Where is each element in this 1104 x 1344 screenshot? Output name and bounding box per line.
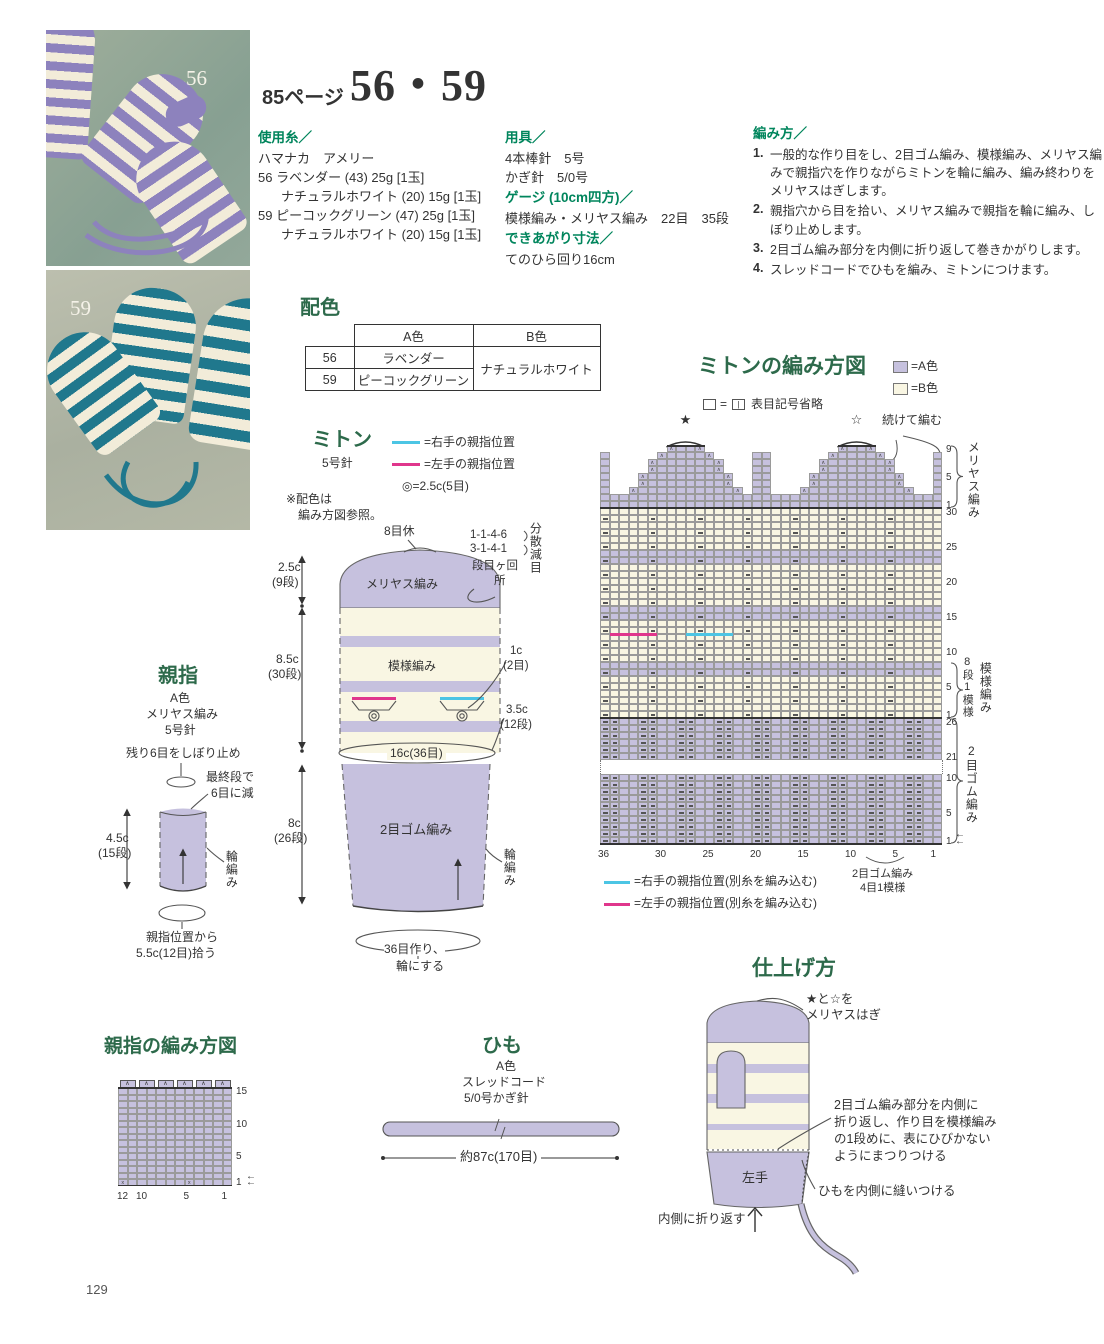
grid-cell [223, 1166, 233, 1173]
grid-cell [876, 634, 886, 641]
grid-cell [695, 753, 705, 760]
grid-cell [914, 809, 924, 816]
grid-cell [705, 732, 715, 739]
grid-cell [695, 536, 705, 543]
grid-cell [819, 522, 829, 529]
grid-cell [762, 613, 772, 620]
grid-cell [194, 1147, 204, 1154]
grid-cell [223, 1134, 233, 1141]
grid-cell [705, 725, 715, 732]
sew-note: の1段めに、表にひびかない [834, 1132, 991, 1147]
mitten-chart-title: ミトンの編み方図 [698, 354, 866, 379]
grid-cell [676, 809, 686, 816]
grid-cell [771, 725, 781, 732]
grid-cell [648, 662, 658, 669]
grid-cell [705, 613, 715, 620]
grid-cell [771, 830, 781, 837]
grid-cell [800, 627, 810, 634]
grid-cell [705, 669, 715, 676]
grid-cell [695, 690, 705, 697]
grid-cell [876, 795, 886, 802]
grid-cell [733, 802, 743, 809]
grid-cell [838, 536, 848, 543]
grid-cell [667, 529, 677, 536]
grid-cell [667, 494, 677, 501]
grid-cell [213, 1101, 223, 1108]
grid-cell [904, 557, 914, 564]
page-title: 56・59 [350, 60, 487, 113]
grid-cell [904, 648, 914, 655]
grid-cell [600, 774, 610, 781]
grid-cell [781, 704, 791, 711]
grid-cell [800, 599, 810, 606]
grid-cell [743, 634, 753, 641]
dim-mid: 8.5c [276, 652, 299, 666]
grid-cell [213, 1140, 223, 1147]
grid-cell [857, 487, 867, 494]
grid-cell [866, 732, 876, 739]
grid-cell [809, 830, 819, 837]
grid-cell [714, 571, 724, 578]
grid-cell [933, 459, 943, 466]
grid-cell [743, 816, 753, 823]
color-table-cell: ラベンダー [354, 347, 473, 369]
grid-cell [809, 662, 819, 669]
grid-cell [648, 529, 658, 536]
grid-cell [648, 718, 658, 725]
grid-cell [819, 641, 829, 648]
grid-cell [714, 676, 724, 683]
grid-cell [676, 739, 686, 746]
grid-cell [838, 655, 848, 662]
grid-cell [733, 585, 743, 592]
grid-cell [657, 830, 667, 837]
grid-cell [204, 1153, 214, 1160]
grid-cell [695, 795, 705, 802]
grid-cell [838, 599, 848, 606]
legend-left-hand-line [392, 463, 420, 466]
grid-cell [762, 830, 772, 837]
grid-cell [923, 578, 933, 585]
grid-cell [676, 529, 686, 536]
grid-cell [600, 753, 610, 760]
grid-cell [762, 802, 772, 809]
grid-cell [904, 564, 914, 571]
grid-cell [809, 823, 819, 830]
grid-cell [828, 816, 838, 823]
grid-cell [686, 515, 696, 522]
color-table-cell: ナチュラルホワイト [473, 347, 600, 391]
grid-cell [914, 592, 924, 599]
grid-cell [743, 823, 753, 830]
grid-cell [790, 690, 800, 697]
grid-cell [705, 459, 715, 466]
grid-cell [790, 585, 800, 592]
grid-cell [923, 655, 933, 662]
grid-cell [809, 529, 819, 536]
grid-cell [933, 725, 943, 732]
grid-cell [800, 662, 810, 669]
grid-cell [724, 816, 734, 823]
grid-cell [752, 452, 762, 459]
grid-cell [914, 725, 924, 732]
grid-cell [857, 753, 867, 760]
grid-cell [695, 648, 705, 655]
thumb-ring-label: 輪編み [224, 850, 238, 889]
grid-cell [885, 627, 895, 634]
grid-cell [714, 522, 724, 529]
row-number: 10 [946, 773, 957, 784]
grid-cell [724, 648, 734, 655]
grid-cell [619, 620, 629, 627]
grid-cell [714, 683, 724, 690]
grid-cell [610, 529, 620, 536]
grid-cell [838, 571, 848, 578]
grid-cell [648, 795, 658, 802]
grid-cell [923, 746, 933, 753]
grid-cell [648, 494, 658, 501]
grid-cell [800, 648, 810, 655]
grid-cell [657, 613, 667, 620]
grid-cell [638, 550, 648, 557]
grid-cell [733, 599, 743, 606]
grid-cell [828, 718, 838, 725]
grid-cell [781, 676, 791, 683]
grid-cell [923, 725, 933, 732]
grid-cell [819, 473, 829, 480]
grid-cell [828, 599, 838, 606]
grid-cell [657, 466, 667, 473]
grid-cell [676, 606, 686, 613]
grid-cell [828, 459, 838, 466]
grid-cell [790, 529, 800, 536]
thumb-bindoff: 残り6目をしぼり止め [126, 746, 241, 760]
row-number: 10 [946, 647, 957, 658]
grid-cell [686, 781, 696, 788]
grid-cell [838, 585, 848, 592]
grid-cell [866, 697, 876, 704]
grid-cell [657, 823, 667, 830]
grid-cell [771, 536, 781, 543]
grid-cell [752, 585, 762, 592]
grid-cell [686, 459, 696, 466]
grid-cell [676, 564, 686, 571]
grid-cell [619, 718, 629, 725]
grid-cell [781, 592, 791, 599]
grid-cell [790, 550, 800, 557]
grid-cell [885, 795, 895, 802]
grid-cell [714, 578, 724, 585]
thumb-dec: 6目に減 [211, 786, 254, 800]
grid-cell [619, 508, 629, 515]
stitch-number: 15 [798, 849, 809, 860]
grid-cell [676, 725, 686, 732]
grid-cell [600, 718, 610, 725]
grid-cell [895, 536, 905, 543]
grid-cell [686, 592, 696, 599]
grid-cell [895, 522, 905, 529]
grid-cell [857, 459, 867, 466]
grid-cell [800, 795, 810, 802]
grid-cell [752, 753, 762, 760]
grid-cell [743, 732, 753, 739]
grid-cell [128, 1140, 138, 1147]
grid-cell [166, 1173, 176, 1180]
grid-cell [781, 613, 791, 620]
grid-cell [800, 830, 810, 837]
star-open: ☆ [847, 412, 867, 428]
grid-cell [876, 585, 886, 592]
grid-cell [724, 802, 734, 809]
grid-cell [762, 522, 772, 529]
grid-cell [600, 802, 610, 809]
rib-bracket-label: 4目1模様 [860, 882, 905, 895]
grid-cell [923, 571, 933, 578]
grid-cell [828, 543, 838, 550]
grid-cell [866, 781, 876, 788]
grid-cell [857, 669, 867, 676]
grid-cell [695, 480, 705, 487]
grid-cell [866, 452, 876, 459]
grid-cell [657, 571, 667, 578]
grid-cell [790, 823, 800, 830]
dim-top-rows: (9段) [272, 575, 299, 589]
grid-cell [857, 571, 867, 578]
grid-cell [876, 753, 886, 760]
grid-cell [914, 823, 924, 830]
grid-cell [657, 774, 667, 781]
grid-cell [686, 557, 696, 564]
grid-cell [752, 676, 762, 683]
grid-cell [933, 655, 943, 662]
grid-cell [128, 1114, 138, 1121]
grid-cell [676, 487, 686, 494]
grid-cell [638, 823, 648, 830]
grid-cell [743, 746, 753, 753]
grid-cell [676, 662, 686, 669]
grid-cell [204, 1140, 214, 1147]
grid-cell [695, 641, 705, 648]
grid-cell [156, 1160, 166, 1167]
grid-cell [752, 592, 762, 599]
grid-cell [847, 746, 857, 753]
grid-cell [752, 627, 762, 634]
grid-cell [828, 529, 838, 536]
color-a-label: =A色 [911, 359, 938, 373]
grid-cell [828, 585, 838, 592]
grid-cell [828, 788, 838, 795]
grid-cell [118, 1088, 128, 1095]
grid-cell [838, 543, 848, 550]
grid-cell [895, 627, 905, 634]
grid-cell [156, 1166, 166, 1173]
grid-cell [676, 802, 686, 809]
grid-cell [895, 620, 905, 627]
grid-cell [733, 592, 743, 599]
grid-cell [857, 613, 867, 620]
grid-cell [137, 1121, 147, 1128]
color-b-swatch [893, 383, 908, 395]
blank-square-symbol [703, 399, 716, 410]
grid-cell [895, 641, 905, 648]
stitch-number: 20 [750, 849, 761, 860]
grid-cell [933, 802, 943, 809]
grid-cell [648, 683, 658, 690]
grid-cell [895, 599, 905, 606]
grid-cell [657, 781, 667, 788]
grid-cell [724, 578, 734, 585]
grid-cell [695, 550, 705, 557]
grid-cell [876, 830, 886, 837]
grid-cell [118, 1101, 128, 1108]
grid-cell [610, 823, 620, 830]
grid-cell [933, 487, 943, 494]
grid-cell [743, 788, 753, 795]
grid-cell [657, 739, 667, 746]
grid-cell [866, 662, 876, 669]
grid-cell [838, 816, 848, 823]
below-thumb: 3.5c [506, 704, 528, 718]
grid-cell [667, 459, 677, 466]
grid-cell [194, 1101, 204, 1108]
grid-cell [648, 753, 658, 760]
grid-cell [828, 690, 838, 697]
grid-cell [223, 1108, 233, 1115]
grid-cell [600, 627, 610, 634]
grid-cell [714, 585, 724, 592]
grid-cell [790, 543, 800, 550]
grid-cell [610, 543, 620, 550]
grid-cell [629, 655, 639, 662]
grid-cell [686, 732, 696, 739]
grid-cell [629, 725, 639, 732]
grid-cell [194, 1160, 204, 1167]
howto-block: 編み方／ 1.一般的な作り目をし、2目ゴム編み、模様編み、メリヤス編みで親指穴を… [753, 122, 1104, 281]
grid-cell [166, 1127, 176, 1134]
grid-cell [762, 557, 772, 564]
gauge-line: 模様編み・メリヤス編み 22目 35段 [505, 211, 729, 227]
grid-cell [686, 522, 696, 529]
grid-cell [204, 1108, 214, 1115]
grid-cell [800, 613, 810, 620]
grid-cell [743, 809, 753, 816]
grid-cell [629, 592, 639, 599]
grid-cell [809, 494, 819, 501]
grid-cell [790, 627, 800, 634]
grid-cell [762, 585, 772, 592]
grid-cell [752, 550, 762, 557]
grid-cell [914, 718, 924, 725]
grid-cell [686, 620, 696, 627]
grid-cell [904, 781, 914, 788]
grid-cell [790, 536, 800, 543]
grid-cell [128, 1153, 138, 1160]
row-number: 15 [236, 1086, 247, 1097]
grid-cell [800, 746, 810, 753]
grid-cell [714, 718, 724, 725]
grid-cell [714, 823, 724, 830]
grid-cell [914, 578, 924, 585]
grid-cell [619, 592, 629, 599]
grid-cell [828, 676, 838, 683]
grid-cell [137, 1173, 147, 1180]
grid-cell [933, 746, 943, 753]
grid-cell [819, 809, 829, 816]
grid-cell [724, 697, 734, 704]
grid-cell [885, 683, 895, 690]
grid-cell [695, 452, 705, 459]
grid-cell [600, 585, 610, 592]
grid-cell [847, 487, 857, 494]
color-table-row-no: 56 [306, 347, 355, 369]
grid-cell [838, 830, 848, 837]
grid-cell [838, 662, 848, 669]
grid-cell [857, 809, 867, 816]
grid-cell [933, 683, 943, 690]
grid-cell [857, 788, 867, 795]
grid-cell [610, 550, 620, 557]
grid-cell [771, 641, 781, 648]
grid-cell [156, 1095, 166, 1102]
side-label-pattern: 模様編み [978, 662, 992, 714]
grid-cell [914, 795, 924, 802]
grid-cell [619, 732, 629, 739]
grid-cell [828, 550, 838, 557]
grid-cell [686, 795, 696, 802]
grid-cell [876, 536, 886, 543]
grid-cell [733, 690, 743, 697]
grid-cell [695, 781, 705, 788]
grid-cell [895, 802, 905, 809]
grid-cell [790, 515, 800, 522]
grid-cell [676, 690, 686, 697]
grid-cell [857, 578, 867, 585]
grid-cell [204, 1166, 214, 1173]
grid-cell [847, 725, 857, 732]
grid-cell [166, 1101, 176, 1108]
grid-cell [619, 564, 629, 571]
grid-cell [610, 795, 620, 802]
grid-cell [686, 809, 696, 816]
row-number: 20 [946, 577, 957, 588]
grid-cell [629, 816, 639, 823]
grid-cell [752, 669, 762, 676]
grid-cell [914, 557, 924, 564]
grid-cell [857, 739, 867, 746]
grid-cell [667, 823, 677, 830]
grid-cell [857, 795, 867, 802]
grid-cell [866, 613, 876, 620]
grid-cell [914, 816, 924, 823]
graft-note: ★と☆を [806, 992, 853, 1007]
grid-cell [638, 781, 648, 788]
grid-cell [904, 704, 914, 711]
grid-cell: ∧ [714, 466, 724, 473]
grid-cell [648, 613, 658, 620]
grid-cell [781, 802, 791, 809]
grid-cell [781, 515, 791, 522]
grid-cell [876, 543, 886, 550]
grid-cell [724, 676, 734, 683]
grid-cell [175, 1095, 185, 1102]
grid-cell [847, 620, 857, 627]
grid-cell [847, 529, 857, 536]
grid-cell [914, 571, 924, 578]
grid-cell [904, 795, 914, 802]
grid-cell [619, 809, 629, 816]
grid-cell [695, 788, 705, 795]
grid-cell [876, 676, 886, 683]
